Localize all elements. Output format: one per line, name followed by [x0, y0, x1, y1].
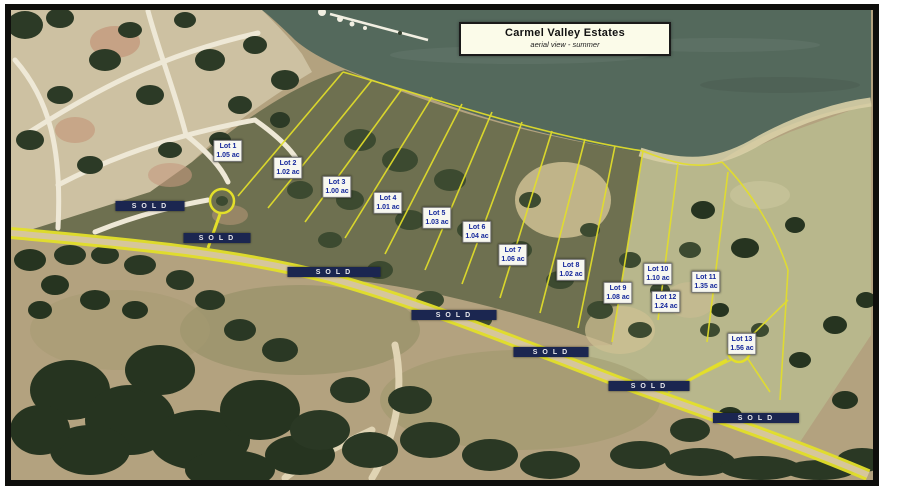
- aerial-photo-art: [11, 10, 873, 480]
- aerial-plat-screenshot: { "title_box": { "line1": "Carmel Valley…: [0, 0, 900, 499]
- map-title: Carmel Valley Estates: [461, 27, 669, 39]
- aerial-photo-map: [5, 4, 879, 486]
- cul-de-sac-east: [728, 340, 750, 362]
- map-subtitle: aerial view - summer: [461, 40, 669, 49]
- map-title-box: Carmel Valley Estates aerial view - summ…: [459, 22, 671, 56]
